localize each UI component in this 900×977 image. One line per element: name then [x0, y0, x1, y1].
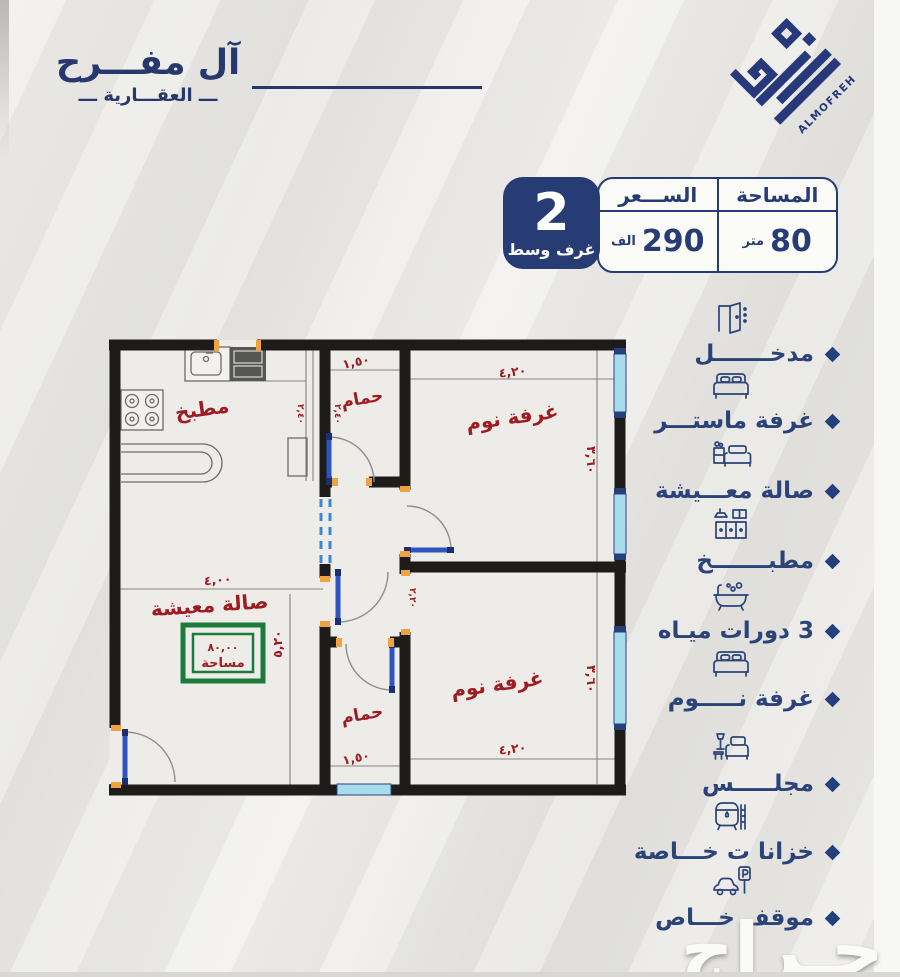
bullet-diamond	[825, 623, 841, 639]
bullet-diamond	[825, 346, 841, 362]
dim-small-c: ٢,٢٠	[407, 588, 417, 608]
feature-kitchen: مطبـــــــخ	[598, 506, 838, 574]
dim-living-height: ٥,٢٠	[270, 630, 285, 658]
bullet-diamond	[825, 776, 841, 792]
water-tank-icon	[598, 797, 753, 835]
feature-label: خزانا ت خـــاصة	[634, 839, 814, 865]
feature-living-room: صالة معـــيشة	[598, 436, 838, 504]
bed-icon	[598, 366, 753, 404]
feature-entrance: مدخـــــــل	[598, 299, 838, 367]
feature-majlis: مجلـــــس	[598, 729, 838, 797]
area-box-value: ٨٠,٠٠	[207, 641, 238, 654]
feature-label: 3 دورات ميـاه	[658, 618, 814, 644]
bullet-diamond	[825, 844, 841, 860]
feature-label: مدخـــــــل	[694, 341, 814, 367]
brand-divider-line	[252, 86, 482, 89]
brand-logo: ALMOFREH	[716, 10, 866, 160]
price-header: الســـعر	[599, 179, 717, 212]
bed-icon	[598, 644, 753, 682]
area-box-label: مساحة	[201, 656, 244, 671]
price-unit: الف	[611, 234, 636, 249]
brand-subtitle-arabic: ـــ العقـــارية ـــ	[48, 85, 248, 106]
living-room-icon	[598, 436, 753, 474]
feature-bathrooms: 3 دورات ميـاه	[598, 576, 838, 644]
dim-bedroom-bottom-height: ٣,٦٠	[584, 665, 599, 693]
feature-label: مجلـــــس	[702, 771, 814, 797]
door-icon	[598, 299, 753, 337]
corner-shade	[0, 0, 9, 160]
feature-bedroom: غرفة نـــــوم	[598, 644, 838, 712]
drainboard	[230, 347, 266, 381]
parking-icon	[598, 863, 753, 901]
right-light-band	[874, 0, 900, 977]
feature-label: صالة معـــيشة	[655, 478, 814, 504]
floorplan-drawing: ٨٠,٠٠ مساحة مطبخ حمام غرفة نوم صالة معيش…	[85, 332, 637, 805]
dim-bedroom-top-height: ٣,٦٠	[584, 446, 599, 474]
feature-water-tanks: خزانا ت خـــاصة	[598, 797, 838, 865]
bullet-diamond	[825, 413, 841, 429]
bullet-diamond	[825, 483, 841, 499]
bathtub-icon	[598, 576, 753, 614]
brand-name-latin: ALMOFREH	[796, 73, 859, 136]
dim-bedroom-bottom-width: ٤,٢٠	[498, 740, 527, 758]
price-cell: الســـعر 290 الف	[599, 179, 719, 271]
area-cell: المساحة 80 متر	[719, 179, 837, 271]
price-value: 290	[642, 224, 705, 259]
rooms-count: 2	[533, 187, 569, 239]
bullet-diamond	[825, 691, 841, 707]
dim-small-b: ٢,٤٠	[332, 404, 342, 424]
poster-canvas: آل مفـــرح ـــ العقـــارية ـــ ALMOFREH …	[0, 0, 900, 977]
area-value-row: 80 متر	[719, 212, 837, 271]
area-header: المساحة	[719, 179, 837, 212]
area-value: 80	[770, 224, 812, 259]
brand-block: آل مفـــرح ـــ العقـــارية ـــ	[48, 44, 248, 106]
brand-name-arabic: آل مفـــرح	[48, 44, 248, 83]
bullet-diamond	[825, 553, 841, 569]
feature-label: مطبـــــــخ	[696, 548, 814, 574]
rooms-badge: 2 غرف وسط	[503, 177, 600, 269]
feature-label: غرفة ماستـــر	[654, 408, 814, 434]
majlis-icon	[598, 729, 753, 767]
rooms-label: غرف وسط	[508, 240, 596, 259]
dim-bedroom-top-width: ٤,٢٠	[498, 363, 527, 381]
dim-small-a: ٢,٤٠	[295, 404, 305, 424]
kufic-diamond-icon: ALMOFREH	[716, 10, 866, 160]
feature-master-room: غرفة ماستـــر	[598, 366, 838, 434]
floorplan: ٨٠,٠٠ مساحة مطبخ حمام غرفة نوم صالة معيش…	[85, 332, 637, 805]
feature-label: غرفة نـــــوم	[668, 686, 814, 712]
area-unit: متر	[743, 234, 764, 249]
kitchen-icon	[598, 506, 753, 544]
price-area-table: المساحة 80 متر الســـعر 290 الف	[597, 177, 838, 273]
bottom-edge	[0, 972, 900, 977]
price-value-row: 290 الف	[599, 212, 717, 271]
haraj-watermark: حـراج	[681, 907, 884, 977]
dim-living-width: ٤,٠٠	[203, 571, 232, 588]
